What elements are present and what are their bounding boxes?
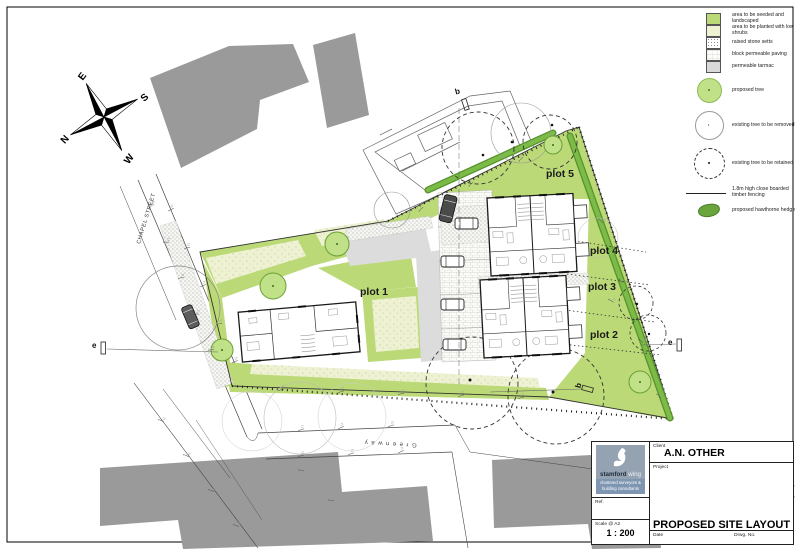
plot-label-4: plot 4 <box>590 245 618 257</box>
scale-value: 1 : 200 <box>592 528 649 538</box>
legend-item-tarmac: permeable tarmac <box>692 61 800 73</box>
swatch-seeded <box>706 13 721 25</box>
legend-label: proposed tree <box>732 88 764 94</box>
logo-name-bold: stamford <box>600 471 626 478</box>
project-label: Project <box>650 463 793 470</box>
legend-item-seeded: area to be seeded and landscaped <box>692 13 800 25</box>
title-block-left-column: stamford wing chartered surveyors & buil… <box>592 442 649 544</box>
logo-swoosh-icon <box>596 445 645 471</box>
legend-item-proposed-tree: proposed tree <box>692 78 800 103</box>
drawing-sheet: E S W N area to be seeded and landscaped… <box>0 0 800 549</box>
legend-item-hedge: proposed hawthorne hedge <box>692 204 800 217</box>
proposed-tree-icon <box>697 78 722 103</box>
title-block-footer: Date Drwg. No. <box>650 530 793 544</box>
house-block-north <box>487 193 590 276</box>
legend-label: 1.8m high close boarded timber fencing <box>732 187 800 198</box>
retained-tree-icon <box>694 148 725 179</box>
scale-cell: Scale @ A2 1 : 200 <box>592 519 649 544</box>
compass-east-label: E <box>76 70 89 82</box>
drawing-no-label: Drwg. No. <box>731 531 755 544</box>
title-block-right-column: Client A.N. OTHER Project PROPOSED SITE … <box>649 442 793 544</box>
date-label: Date <box>650 531 731 544</box>
project-title: PROPOSED SITE LAYOUT <box>650 519 793 531</box>
swatch-paving <box>706 49 721 61</box>
section-marker-e-left: e <box>92 341 96 350</box>
project-cell: Project PROPOSED SITE LAYOUT <box>650 463 793 530</box>
ref-cell: Ref. <box>592 497 649 519</box>
legend-label: block permeable paving <box>732 52 787 58</box>
compass-south-label: S <box>139 91 152 104</box>
compass-rose: E S W N <box>35 47 174 190</box>
swatch-shrubs <box>706 25 721 37</box>
removed-tree-icon <box>695 111 724 140</box>
legend-item-paving: block permeable paving <box>692 49 800 61</box>
plot-label-3: plot 3 <box>588 281 616 293</box>
logo-tagline-line2: building consultants <box>596 486 645 492</box>
plot-label-1: plot 1 <box>360 286 388 298</box>
legend-item-fence: 1.8m high close boarded timber fencing <box>692 187 800 199</box>
legend-label: raised stone setts <box>732 40 773 46</box>
title-block: stamford wing chartered surveyors & buil… <box>591 441 794 545</box>
compass-north-label: N <box>59 134 72 147</box>
plot-label-2: plot 2 <box>590 329 618 341</box>
swatch-tarmac <box>706 61 721 73</box>
legend-label: proposed hawthorne hedge <box>732 208 795 214</box>
compass-west-label: W <box>122 152 137 167</box>
section-marker-e-right: e <box>668 338 672 347</box>
legend-item-tree-removed: existing tree to be removed <box>692 111 800 140</box>
hedge-icon <box>697 203 721 219</box>
legend: area to be seeded and landscaped area to… <box>692 13 800 217</box>
legend-label: existing tree to be retained <box>732 161 793 167</box>
client-cell: Client A.N. OTHER <box>650 442 793 463</box>
client-name: A.N. OTHER <box>664 447 725 459</box>
legend-item-tree-retained: existing tree to be retained <box>692 148 800 179</box>
logo-tagline: chartered surveyors & building consultan… <box>596 479 645 494</box>
house-block-south <box>480 275 583 358</box>
legend-item-shrubs: area to be planted with low shrubs <box>692 25 800 37</box>
legend-label: permeable tarmac <box>732 64 774 70</box>
plot-label-5: plot 5 <box>546 168 574 180</box>
logo-name-light: wing <box>627 471 641 478</box>
ref-label: Ref. <box>592 498 649 505</box>
scale-label: Scale @ A2 <box>592 520 649 527</box>
legend-item-setts: raised stone setts <box>692 37 800 49</box>
legend-label: area to be planted with low shrubs <box>732 25 800 36</box>
swatch-setts <box>706 37 721 49</box>
logo-name: stamford wing <box>596 471 645 478</box>
company-logo: stamford wing chartered surveyors & buil… <box>596 445 645 494</box>
legend-label: area to be seeded and landscaped <box>732 13 800 24</box>
plot1-house <box>238 302 360 362</box>
fence-line-icon <box>686 193 726 194</box>
legend-label: existing tree to be removed <box>732 123 795 129</box>
